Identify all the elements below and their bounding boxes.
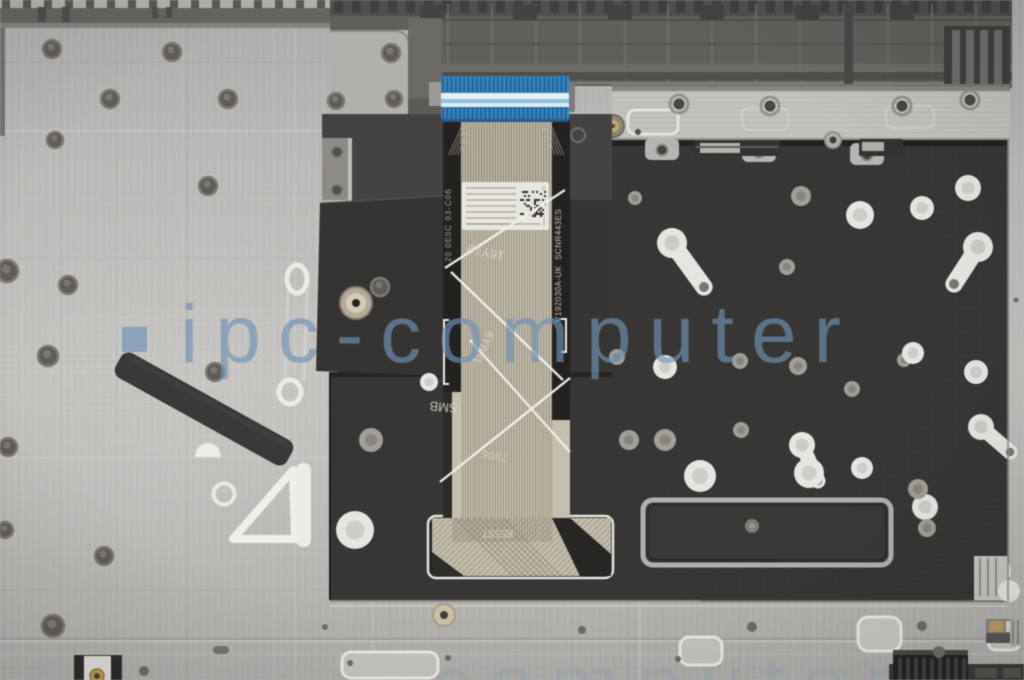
svg-text:computer: computer: [430, 639, 908, 680]
svg-text:ipc-computer: ipc-computer: [180, 289, 858, 380]
